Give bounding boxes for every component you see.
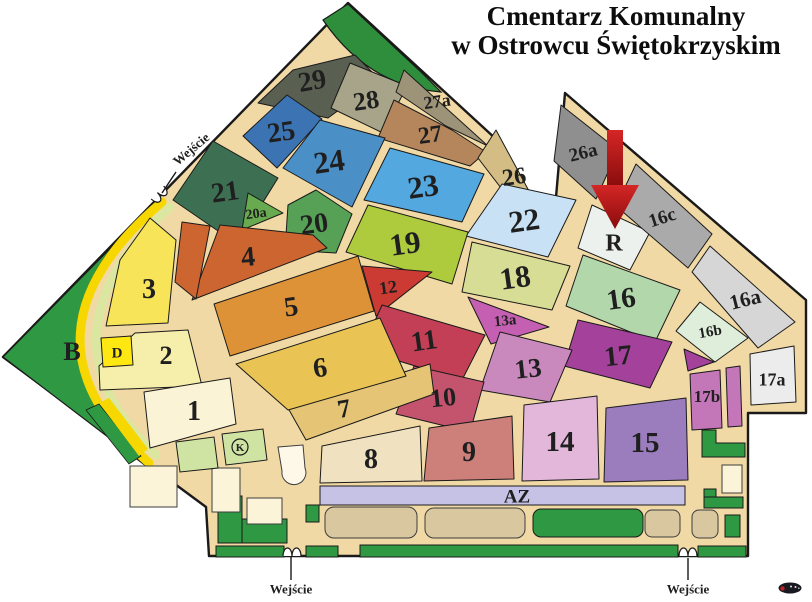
section-label-19: 19 xyxy=(387,224,423,263)
green-lawn xyxy=(533,509,643,537)
k-badge-label: K xyxy=(236,442,245,454)
entrance-label: Wejście xyxy=(270,582,313,597)
section-label-AZ: AZ xyxy=(504,487,530,508)
section-label-11: 11 xyxy=(409,324,440,358)
cemetery-map-page: Cmentarz Komunalny w Ostrowcu Świętokrzy… xyxy=(0,0,812,602)
section-label-17b: 17b xyxy=(694,387,720,406)
green-strip xyxy=(306,546,338,557)
section-label-12: 12 xyxy=(378,276,399,298)
building-cream xyxy=(722,465,742,493)
cemetery-map: AZ292827a272626a252423222120a201918R16c1… xyxy=(0,0,812,602)
section-label-R: R xyxy=(605,230,623,256)
field-light-green xyxy=(222,429,267,465)
section-label-17a: 17a xyxy=(759,369,786,389)
section-label-1: 1 xyxy=(187,396,201,427)
section-label-13: 13 xyxy=(513,352,543,385)
building xyxy=(692,510,718,538)
green-strip xyxy=(704,497,743,508)
car-icon xyxy=(779,583,802,594)
building xyxy=(325,507,417,538)
section-label-15: 15 xyxy=(631,427,660,459)
section-label-23: 23 xyxy=(405,167,441,206)
section-label-25: 25 xyxy=(265,115,297,150)
field-light-green xyxy=(176,437,218,472)
green-strip xyxy=(360,545,678,557)
building xyxy=(425,508,525,538)
building-cream xyxy=(247,498,282,524)
building-cream xyxy=(130,466,177,507)
section-label-B: B xyxy=(63,337,80,366)
section-label-22: 22 xyxy=(506,201,542,240)
section-label-16: 16 xyxy=(605,281,638,317)
section-label-9: 9 xyxy=(462,437,476,468)
section-label-2: 2 xyxy=(160,341,173,370)
section-label-8: 8 xyxy=(364,444,378,475)
section-label-17: 17 xyxy=(603,339,634,373)
section-17b2 xyxy=(726,366,742,427)
section-label-3: 3 xyxy=(142,274,156,305)
red-arrow-shaft xyxy=(607,130,623,188)
section-AZ xyxy=(320,486,685,505)
green-strip xyxy=(216,546,284,557)
section-label-20a: 20a xyxy=(245,205,268,223)
section-label-21: 21 xyxy=(209,175,241,210)
section-label-29: 29 xyxy=(296,64,329,99)
section-label-24: 24 xyxy=(311,142,347,181)
green-strip xyxy=(306,505,319,522)
section-label-14: 14 xyxy=(546,426,575,458)
green-strip xyxy=(698,546,746,557)
building-cream xyxy=(212,468,240,512)
section-label-26: 26 xyxy=(501,163,528,192)
section-label-18: 18 xyxy=(497,258,533,297)
section-label-20: 20 xyxy=(298,207,330,242)
section-label-4: 4 xyxy=(240,241,257,273)
entrance-label: Wejście xyxy=(667,582,710,597)
section-label-27a: 27a xyxy=(422,90,452,114)
section-label-27: 27 xyxy=(417,121,444,150)
section-label-D: D xyxy=(112,345,123,361)
green-strip xyxy=(725,515,740,537)
building xyxy=(645,510,680,537)
section-label-13a: 13a xyxy=(493,312,518,330)
section-label-10: 10 xyxy=(429,382,458,414)
section-label-28: 28 xyxy=(351,84,381,116)
